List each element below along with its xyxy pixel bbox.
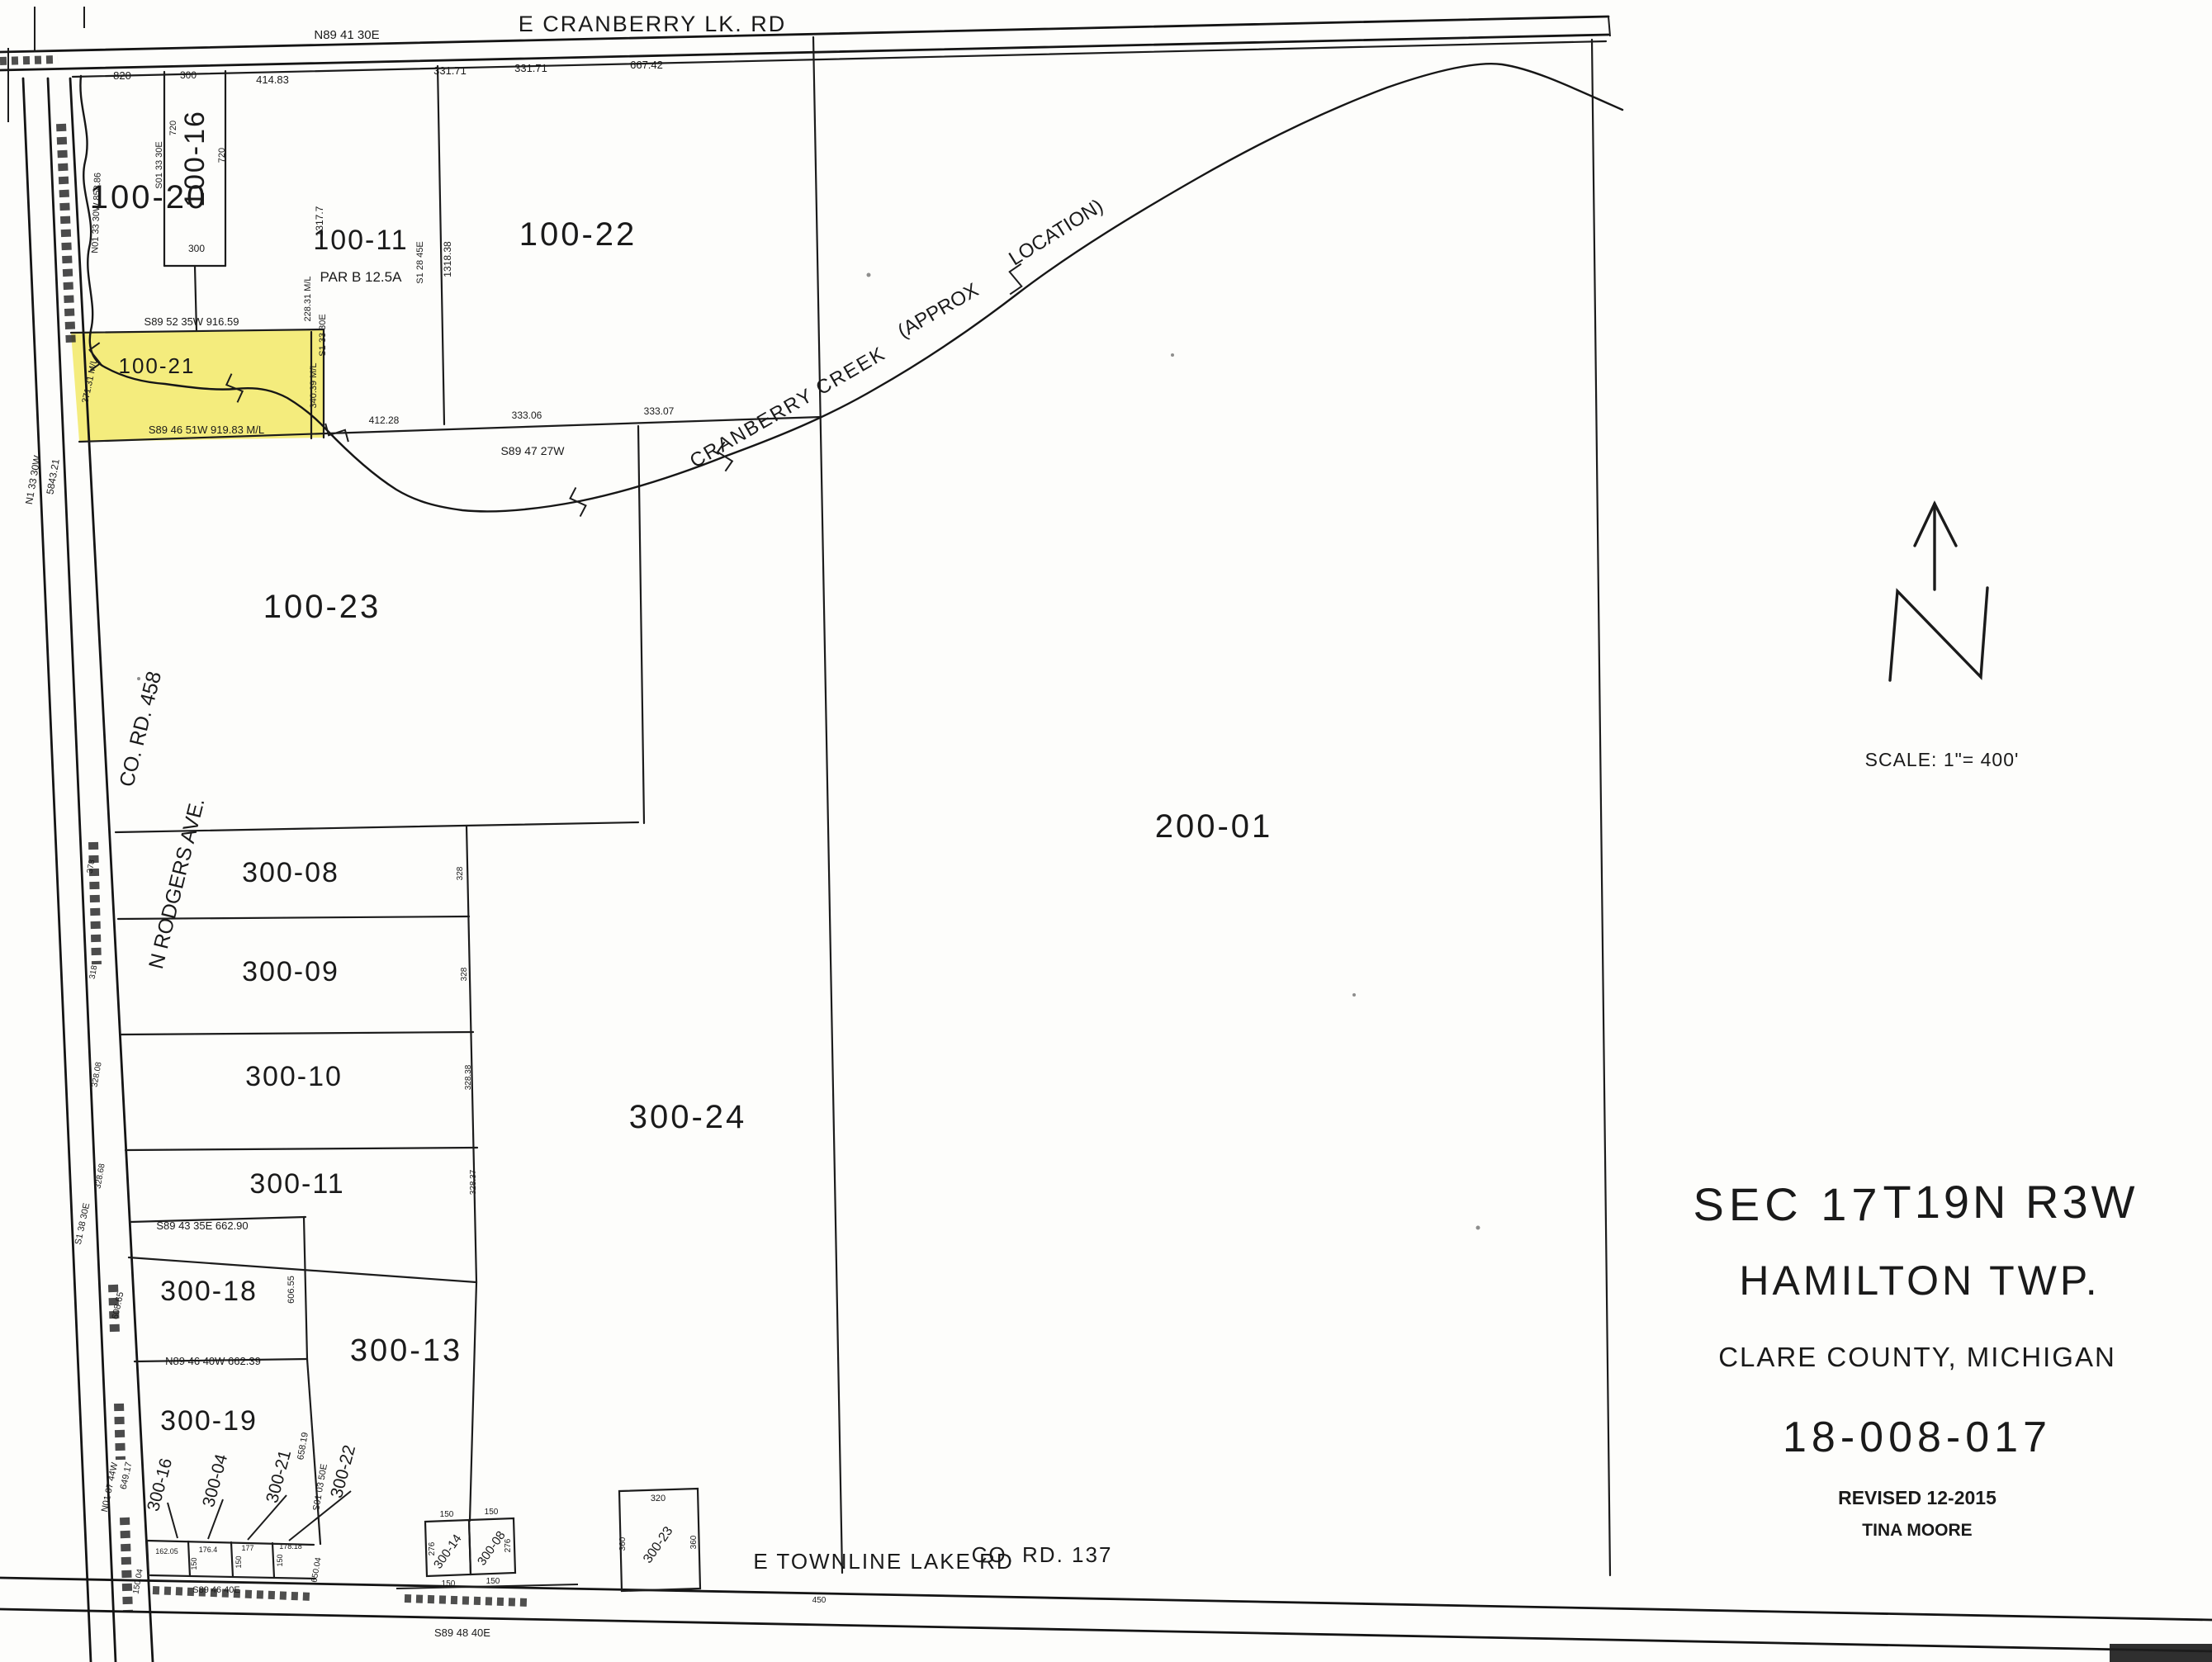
- dim-300-19-west: 649.17: [119, 1461, 135, 1490]
- note-100-11-par-b: PAR B 12.5A: [320, 269, 403, 285]
- dim-100-11-north: 414.83: [256, 73, 289, 86]
- dim-lot08-south: 150: [486, 1577, 500, 1586]
- parcel-row-line: [121, 1032, 473, 1035]
- scan-dot: [137, 677, 140, 680]
- dim-300-10-east: 328.38: [464, 1064, 473, 1090]
- parcel-label-300-09: 300-09: [242, 956, 339, 987]
- road-end-tick: [1608, 17, 1610, 36]
- dim-100-16-north: 300: [180, 69, 197, 81]
- bearing-300-18-west: S1 38 30E: [73, 1202, 92, 1246]
- dim-300-19-east: 658.19: [296, 1432, 310, 1461]
- parcel-label-300-08: 300-08: [242, 857, 339, 888]
- dim-300-18-west: 608.65: [111, 1291, 126, 1320]
- bearing-lots-south: S89 46 40E: [192, 1585, 240, 1595]
- parcel-label-300-13: 300-13: [350, 1333, 462, 1368]
- bearing-100-16-west: S01 33 30E: [154, 141, 164, 189]
- dim-100-16-south: 300: [188, 243, 205, 254]
- parcel-label-300-04: 300-04: [199, 1451, 231, 1508]
- dim-300-08-east: 328: [456, 866, 465, 880]
- creek-note-approx: (APPROX: [894, 279, 983, 343]
- dim-lot14-west: 276: [428, 1541, 437, 1555]
- scale-text: SCALE: 1"= 400': [1865, 749, 2020, 770]
- dim-100-22-west: 1318.38: [442, 241, 453, 277]
- title-revised: REVISED 12-2015: [1838, 1487, 1996, 1508]
- road-cranberry-lk-rd: [0, 17, 1610, 70]
- title-author: TINA MOORE: [1862, 1521, 1972, 1540]
- title-township: HAMILTON TWP.: [1739, 1257, 2100, 1304]
- dim-412-28: 412.28: [369, 414, 400, 426]
- dim-100-16-east: 720: [217, 148, 227, 163]
- dim-lot-150-b: 150: [234, 1555, 243, 1568]
- title-county: CLARE COUNTY, MICHIGAN: [1718, 1342, 2116, 1372]
- dim-lot-150-a: 150: [190, 1557, 198, 1570]
- road-label-n-rodgers-ave: N RODGERS AVE.: [144, 796, 209, 972]
- title-township-range: T19N R3W: [1883, 1176, 2139, 1228]
- dim-300-11-east: 328.37: [469, 1169, 478, 1195]
- road-n-rodgers-ave: [8, 7, 153, 1662]
- north-arrow-icon: [1890, 504, 1987, 680]
- parcel-label-300-22: 300-22: [327, 1443, 359, 1500]
- scan-dot: [1352, 993, 1356, 997]
- dim-100-21-north: S89 52 35W 916.59: [144, 315, 239, 328]
- parcel-300-18-east: [304, 1217, 307, 1359]
- dim-lot-178-18: 178.18: [279, 1542, 302, 1551]
- parcel-label-300-21: 300-21: [263, 1448, 295, 1505]
- dim-top-667-42: 667.42: [630, 59, 663, 71]
- dim-top-331-71-b: 331.71: [514, 62, 547, 74]
- road-label-cranberry-lk-rd: E CRANBERRY LK. RD: [519, 12, 787, 36]
- plat-map-canvas: N89 41 30EE CRANBERRY LK. RDCO. RD. 458N…: [0, 0, 2212, 1662]
- dim-300-23-west: 360: [618, 1537, 628, 1551]
- dim-lot14-south: 150: [442, 1579, 456, 1589]
- bearing-300-19-east: S01 03 50E: [311, 1463, 329, 1512]
- bearing-cranberry-lk-rd: N89 41 30E: [314, 28, 379, 42]
- creek-note-location: LOCATION): [1005, 195, 1107, 270]
- bearing-townline-lake-rd: S89 48 40E: [434, 1626, 490, 1639]
- parcel-label-100-23: 100-23: [263, 589, 381, 625]
- quarter-line: [813, 37, 842, 1573]
- scan-dot: [1476, 1226, 1480, 1230]
- small-lot-line: [272, 1543, 274, 1578]
- parcel-label-300-10: 300-10: [245, 1061, 343, 1092]
- road-hatch: [61, 124, 71, 347]
- parcel-label-300-24: 300-24: [629, 1099, 747, 1135]
- dim-333-07: 333.07: [644, 405, 675, 417]
- scan-dot: [1171, 353, 1174, 357]
- parcel-label-100-22: 100-22: [519, 216, 637, 253]
- parcel-label-200-01: 200-01: [1155, 808, 1273, 845]
- dim-lot-177: 177: [241, 1544, 253, 1552]
- parcel-label-300-11: 300-11: [249, 1168, 344, 1200]
- dim-300-18-north: S89 43 35E 662.90: [156, 1219, 248, 1232]
- parcel-label-100-16: 100-16: [179, 110, 211, 207]
- road-label-co-rd-137: CO. RD. 137: [972, 1542, 1113, 1567]
- small-lot-line: [231, 1542, 233, 1577]
- creek-label: CRANBERRY CREEK: [686, 343, 890, 473]
- dim-100-21-south: S89 46 51W 919.83 M/L: [149, 424, 264, 436]
- dim-300-18-south: N89 46 40W 662.39: [165, 1355, 261, 1367]
- section-north-line: [73, 41, 1606, 77]
- bearing-s1-33-30e: S1 33 30E: [318, 314, 328, 356]
- road-line: [0, 1578, 2212, 1620]
- parcel-label-100-21: 100-21: [119, 353, 196, 378]
- dim-100-16-west: 720: [168, 121, 178, 135]
- dim-300-09-west: 318: [88, 964, 100, 980]
- parcel-label-300-18: 300-18: [160, 1276, 258, 1307]
- scan-smudge: [2110, 1644, 2212, 1662]
- dim-lot-176-4: 176.4: [199, 1546, 218, 1554]
- dim-650-04: 650.04: [310, 1556, 323, 1583]
- plat-map-page: N89 41 30EE CRANBERRY LK. RDCO. RD. 458N…: [0, 0, 2212, 1662]
- dim-300-09-east: 328: [460, 967, 469, 981]
- road-hatch: [125, 1518, 128, 1612]
- bearing-100-23-north: S89 47 27W: [500, 444, 565, 457]
- section-east-line: [1592, 40, 1610, 1575]
- road-hatch: [119, 1404, 121, 1460]
- dim-300-23-east: 360: [689, 1535, 699, 1549]
- dim-rodgers-ave-length: 5843.21: [44, 457, 61, 495]
- parcel-label-300-16: 300-16: [144, 1456, 176, 1513]
- parcel-row-line: [126, 1148, 477, 1150]
- dim-333-06: 333.06: [512, 410, 542, 421]
- parcel-label-100-11: 100-11: [313, 225, 408, 256]
- leader-line: [168, 1503, 178, 1538]
- dim-100-21-east: 340.39 M/L: [309, 362, 319, 408]
- road-townline-lake-rd: [0, 1578, 2212, 1651]
- road-label-co-rd-458: CO. RD. 458: [115, 669, 166, 789]
- scan-dot: [867, 273, 871, 277]
- dim-300-11-west: 328.68: [93, 1162, 107, 1189]
- parcel-boundaries: [71, 37, 1610, 1591]
- road-hatch: [405, 1598, 528, 1603]
- parcel-label-300-19: 300-19: [160, 1405, 258, 1437]
- dim-300-23-north: 320: [651, 1494, 665, 1503]
- dim-lot-150-c: 150: [276, 1554, 284, 1566]
- title-parcel-number: 18-008-017: [1783, 1413, 2052, 1461]
- dim-lot-162-05: 162.05: [155, 1547, 178, 1555]
- dim-lot08-north: 150: [485, 1508, 499, 1517]
- bearing-300-19-west: N01 07 44W: [100, 1461, 121, 1513]
- dim-top-331-71-a: 331.71: [433, 64, 467, 77]
- dim-228-31: 228.31 M/L: [303, 276, 313, 321]
- north-arrow-letter-n: [1890, 588, 1987, 680]
- bearing-100-11-east: S1 28 45E: [415, 241, 425, 283]
- dim-100-20-north: 820: [113, 69, 131, 82]
- dim-300-18-east: 606.55: [287, 1276, 296, 1304]
- road-line: [0, 35, 1608, 70]
- parcel-label-300-23: 300-23: [641, 1524, 676, 1566]
- dim-lot14-north: 150: [440, 1510, 454, 1519]
- map-text-layer: N89 41 30EE CRANBERRY LK. RDCO. RD. 458N…: [23, 12, 2139, 1639]
- road-line: [0, 1609, 2212, 1651]
- dim-road-450: 450: [812, 1596, 827, 1605]
- dim-300-10-west: 328.08: [90, 1061, 103, 1087]
- title-section: SEC 17: [1693, 1178, 1883, 1230]
- dim-100-11-west: 1317.7: [314, 206, 325, 236]
